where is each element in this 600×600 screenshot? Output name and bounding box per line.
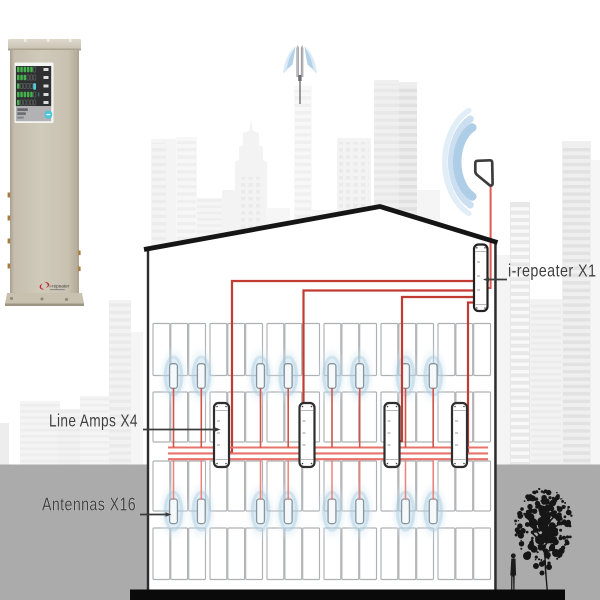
svg-text:Antennas X16: Antennas X16 bbox=[42, 495, 136, 515]
svg-text:i-repeater X1: i-repeater X1 bbox=[508, 261, 596, 281]
svg-text:i-repeater: i-repeater bbox=[50, 284, 70, 289]
svg-text:Line Amps X4: Line Amps X4 bbox=[49, 412, 138, 431]
